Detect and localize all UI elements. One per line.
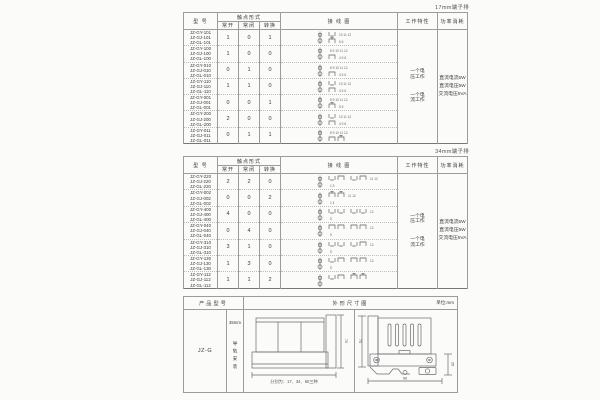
model-cell: JZ-GY-101JZ-GJ-101JZ-GL-101 bbox=[184, 30, 218, 46]
model-cell: JZ-GY-400JZ-GJ-400JZ-GL-400 bbox=[184, 206, 218, 222]
wiring-diagram: 11 121 5 bbox=[282, 174, 397, 189]
side-rail-label: 35 bbox=[451, 362, 456, 367]
model-name: JZ-GL-400 bbox=[184, 217, 217, 222]
diagram-cell: 125 bbox=[281, 223, 398, 239]
unit-label: 单位:mm bbox=[436, 300, 454, 306]
co-count: 1 bbox=[260, 30, 281, 46]
mount-type-label: 导轨安装 bbox=[232, 328, 238, 384]
model-name: JZ-GL-310 bbox=[184, 250, 217, 255]
nc-count: 1 bbox=[239, 239, 260, 255]
diagram-cell: 10 11 125 6 bbox=[281, 30, 398, 46]
model-cell: JZ-GY-011JZ-GJ-011JZ-GL-011 bbox=[184, 127, 218, 143]
model-cell: JZ-GY-010JZ-GJ-010JZ-GL-010 bbox=[184, 62, 218, 78]
diagram-cell: 8 9 10 11 124 5 6 bbox=[281, 62, 398, 78]
nc-count: 0 bbox=[239, 190, 260, 206]
no-count: 1 bbox=[218, 255, 239, 271]
model-name: JZ-GL-010 bbox=[184, 73, 217, 78]
co-count: 1 bbox=[260, 95, 281, 111]
svg-text:8 9 10 11 12: 8 9 10 11 12 bbox=[330, 66, 348, 70]
model-name: JZ-GL-112 bbox=[184, 283, 217, 288]
col-header-contact-form: 触点形式 bbox=[218, 13, 281, 22]
svg-text:10 11 12: 10 11 12 bbox=[339, 115, 351, 119]
nc-count: 0 bbox=[239, 111, 260, 127]
no-count: 0 bbox=[218, 127, 239, 143]
diagram-cell: 8 9 10 11 124 5 6 bbox=[281, 46, 398, 62]
side-height-label: 70 bbox=[358, 339, 363, 344]
svg-text:1 4: 1 4 bbox=[330, 201, 335, 205]
model-name: JZ-GL-040 bbox=[184, 233, 217, 238]
wiring-diagram: 11 121 4 bbox=[282, 191, 397, 206]
diagram-cell bbox=[281, 272, 398, 288]
svg-text:4 5 6: 4 5 6 bbox=[339, 56, 346, 60]
co-count: 0 bbox=[260, 174, 281, 190]
model-name: JZ-GL-110 bbox=[184, 89, 217, 94]
svg-text:5 6: 5 6 bbox=[339, 105, 344, 109]
model-cell: JZ-GY-001JZ-GJ-001JZ-GL-001 bbox=[184, 95, 218, 111]
co-count: 0 bbox=[260, 46, 281, 62]
front-view-cell: 70 分别为：17、34、60三种 bbox=[244, 310, 355, 393]
col-header-outline: 外形尺寸图 单位:mm bbox=[244, 297, 458, 310]
wiring-diagram: 125 bbox=[282, 207, 397, 222]
svg-text:4 5 6: 4 5 6 bbox=[339, 89, 346, 93]
co-count: 2 bbox=[260, 272, 281, 288]
svg-text:8 9 10 11 12: 8 9 10 11 12 bbox=[330, 49, 348, 53]
model-name: JZ-GL-100 bbox=[184, 56, 217, 61]
svg-text:12: 12 bbox=[370, 259, 374, 263]
svg-text:10 11 12: 10 11 12 bbox=[339, 82, 351, 86]
nc-count: 0 bbox=[239, 206, 260, 222]
front-view-drawing: 70 分别为：17、34、60三种 bbox=[244, 310, 354, 387]
col-header-nc: 常闭 bbox=[239, 22, 260, 30]
model-name: JZ-GL-101 bbox=[184, 40, 217, 45]
no-count: 3 bbox=[218, 239, 239, 255]
nc-count: 1 bbox=[239, 127, 260, 143]
col-header-co: 转换 bbox=[260, 166, 281, 174]
col-header-model: 型 号 bbox=[184, 13, 218, 30]
model-cell: JZ-GY-310JZ-GJ-310JZ-GL-310 bbox=[184, 239, 218, 255]
col-header-nc: 常闭 bbox=[239, 166, 260, 174]
co-count: 0 bbox=[260, 206, 281, 222]
spec-table-17mm-container: 型 号触点形式接 线 图工作特性功率消耗常开常闭转换JZ-GY-101JZ-GJ… bbox=[183, 12, 468, 144]
model-name: JZ-GL-130 bbox=[184, 266, 217, 271]
svg-text:5: 5 bbox=[330, 233, 332, 237]
outline-table: 产品型号 外形尺寸图 单位:mm JZ-G 35mm 导轨安装 bbox=[183, 296, 458, 393]
model-cell: JZ-GY-100JZ-GJ-100JZ-GL-100 bbox=[184, 46, 218, 62]
work-mode-cell: 一个电压工作一个电流工作 bbox=[398, 174, 438, 289]
nc-count: 1 bbox=[239, 272, 260, 288]
no-count: 0 bbox=[218, 223, 239, 239]
co-count: 0 bbox=[260, 239, 281, 255]
power-item-label: 交流电压5VA bbox=[438, 92, 467, 97]
nc-count: 1 bbox=[239, 78, 260, 94]
model-cell: JZ-GY-220JZ-GJ-220JZ-GL-220 bbox=[184, 174, 218, 190]
mount-cell: 35mm 导轨安装 bbox=[227, 310, 244, 393]
spec-row: JZ-GY-220JZ-GJ-220JZ-GL-22022011 121 5一个… bbox=[184, 174, 468, 190]
model-name: JZ-GL-011 bbox=[184, 138, 217, 143]
wiring-diagram: 10 11 124 5 6 bbox=[282, 112, 397, 127]
wiring-diagram: 8 9 10 11 125 6 bbox=[282, 95, 397, 110]
power-item-label: 直流电压5W bbox=[438, 84, 467, 89]
model-name: JZ-GL-200 bbox=[184, 122, 217, 127]
svg-text:4 5 6: 4 5 6 bbox=[339, 73, 346, 77]
nc-count: 1 bbox=[239, 62, 260, 78]
no-count: 0 bbox=[218, 95, 239, 111]
svg-text:5 6: 5 6 bbox=[339, 40, 344, 44]
power-consumption-cell: 直流电流5W直流电压5W交流电压5VA bbox=[438, 30, 468, 144]
co-count: 2 bbox=[260, 190, 281, 206]
model-cell: JZ-GY-112JZ-GJ-112JZ-GL-112 bbox=[184, 272, 218, 288]
model-cell: JZ-GY-110JZ-GJ-110JZ-GL-110 bbox=[184, 78, 218, 94]
front-view-note: 分别为：17、34、60三种 bbox=[270, 378, 317, 385]
diagram-cell: 10 11 124 5 6 bbox=[281, 111, 398, 127]
col-header-work: 工作特性 bbox=[398, 157, 438, 174]
no-count: 1 bbox=[218, 78, 239, 94]
col-header-work: 工作特性 bbox=[398, 13, 438, 30]
front-height-label: 70 bbox=[344, 339, 349, 344]
no-count: 1 bbox=[218, 30, 239, 46]
model-name: JZ-GL-001 bbox=[184, 105, 217, 110]
diagram-cell: 125 bbox=[281, 206, 398, 222]
col-header-co: 转换 bbox=[260, 22, 281, 30]
spec-table: 型 号触点形式接 线 图工作特性功率消耗常开常闭转换JZ-GY-220JZ-GJ… bbox=[183, 156, 468, 289]
nc-count: 0 bbox=[239, 95, 260, 111]
co-count: 0 bbox=[260, 62, 281, 78]
no-count: 2 bbox=[218, 111, 239, 127]
diagram-cell: 8 9 10 11 125 6 bbox=[281, 95, 398, 111]
svg-text:12: 12 bbox=[370, 226, 374, 230]
col-header-wiring: 接 线 图 bbox=[281, 13, 398, 30]
outline-header-label: 外形尺寸图 bbox=[333, 301, 369, 307]
svg-text:5: 5 bbox=[330, 217, 332, 221]
wiring-diagram: 8 9 10 11 124 5 6 bbox=[282, 46, 397, 61]
no-count: 4 bbox=[218, 206, 239, 222]
no-count: 1 bbox=[218, 46, 239, 62]
model-cell: JZ-GY-130JZ-GJ-130JZ-GL-130 bbox=[184, 255, 218, 271]
work-mode-label: 一个电流工作 bbox=[410, 237, 426, 248]
product-model-cell: JZ-G bbox=[184, 310, 227, 393]
diagram-cell: 8 9 10 11 12 bbox=[281, 127, 398, 143]
col-header-no: 常开 bbox=[218, 166, 239, 174]
power-item-label: 直流电流5W bbox=[438, 220, 467, 225]
side-width-label: 90 bbox=[403, 376, 408, 381]
work-mode-label: 一个电压工作 bbox=[410, 69, 426, 80]
diagram-cell: 11 121 5 bbox=[281, 174, 398, 190]
svg-text:12: 12 bbox=[370, 210, 374, 214]
col-header-wiring: 接 线 图 bbox=[281, 157, 398, 174]
co-count: 0 bbox=[260, 78, 281, 94]
no-count: 2 bbox=[218, 174, 239, 190]
svg-text:8 9 10 11 12: 8 9 10 11 12 bbox=[330, 131, 348, 135]
work-mode-label: 一个电流工作 bbox=[410, 93, 426, 104]
svg-text:10 11 12: 10 11 12 bbox=[339, 33, 351, 37]
svg-text:5: 5 bbox=[330, 266, 332, 270]
co-count: 0 bbox=[260, 255, 281, 271]
col-header-contact-form: 触点形式 bbox=[218, 157, 281, 166]
wiring-diagram: 10 11 125 6 bbox=[282, 30, 397, 45]
svg-text:4 5 6: 4 5 6 bbox=[339, 122, 346, 126]
col-header-no: 常开 bbox=[218, 22, 239, 30]
nc-count: 0 bbox=[239, 30, 260, 46]
model-name: JZ-GL-002 bbox=[184, 201, 217, 206]
svg-text:8 9 10 11 12: 8 9 10 11 12 bbox=[330, 98, 348, 102]
mount-width-label: 35mm bbox=[227, 320, 243, 325]
work-mode-label: 一个电压工作 bbox=[410, 214, 426, 225]
model-cell: JZ-GY-200JZ-GJ-200JZ-GL-200 bbox=[184, 111, 218, 127]
nc-count: 0 bbox=[239, 46, 260, 62]
svg-text:5: 5 bbox=[330, 250, 332, 254]
svg-text:11 12: 11 12 bbox=[370, 177, 378, 181]
power-item-label: 交流电压5VA bbox=[438, 236, 467, 241]
model-cell: JZ-GY-040JZ-GJ-040JZ-GL-040 bbox=[184, 223, 218, 239]
no-count: 0 bbox=[218, 190, 239, 206]
diagram-cell: 125 bbox=[281, 239, 398, 255]
spec-table: 型 号触点形式接 线 图工作特性功率消耗常开常闭转换JZ-GY-101JZ-GJ… bbox=[183, 12, 468, 144]
co-count: 0 bbox=[260, 223, 281, 239]
no-count: 0 bbox=[218, 62, 239, 78]
terminal-label-17mm: 17mm端子排 bbox=[435, 3, 469, 11]
wiring-diagram: 8 9 10 11 12 bbox=[282, 128, 397, 143]
catalog-page: 17mm端子排 型 号触点形式接 线 图工作特性功率消耗常开常闭转换JZ-GY-… bbox=[0, 0, 600, 400]
nc-count: 4 bbox=[239, 223, 260, 239]
wiring-diagram: 125 bbox=[282, 223, 397, 238]
diagram-cell: 10 11 124 5 6 bbox=[281, 78, 398, 94]
side-view-cell: 70 90 35 bbox=[355, 310, 458, 393]
no-count: 1 bbox=[218, 272, 239, 288]
svg-text:12: 12 bbox=[370, 243, 374, 247]
wiring-diagram: 8 9 10 11 124 5 6 bbox=[282, 63, 397, 78]
nc-count: 2 bbox=[239, 174, 260, 190]
wiring-diagram bbox=[282, 273, 397, 288]
spec-table-34mm-container: 型 号触点形式接 线 图工作特性功率消耗常开常闭转换JZ-GY-220JZ-GJ… bbox=[183, 156, 468, 289]
svg-text:11 12: 11 12 bbox=[348, 194, 356, 198]
co-count: 1 bbox=[260, 127, 281, 143]
col-header-power: 功率消耗 bbox=[438, 157, 468, 174]
svg-text:1 5: 1 5 bbox=[330, 184, 335, 188]
col-header-model: 型 号 bbox=[184, 157, 218, 174]
spec-row: JZ-GY-101JZ-GJ-101JZ-GL-10110110 11 125 … bbox=[184, 30, 468, 46]
side-view-drawing: 70 90 35 bbox=[355, 310, 457, 387]
power-item-label: 直流电压5W bbox=[438, 228, 467, 233]
col-header-product: 产品型号 bbox=[184, 297, 244, 310]
product-model: JZ-G bbox=[198, 348, 212, 354]
power-item-label: 直流电流5W bbox=[438, 76, 467, 81]
nc-count: 3 bbox=[239, 255, 260, 271]
wiring-diagram: 10 11 124 5 6 bbox=[282, 79, 397, 94]
model-cell: JZ-GY-002JZ-GJ-002JZ-GL-002 bbox=[184, 190, 218, 206]
wiring-diagram: 125 bbox=[282, 240, 397, 255]
outline-table-container: 产品型号 外形尺寸图 单位:mm JZ-G 35mm 导轨安装 bbox=[183, 296, 458, 393]
work-mode-cell: 一个电压工作一个电流工作 bbox=[398, 30, 438, 144]
col-header-power: 功率消耗 bbox=[438, 13, 468, 30]
diagram-cell: 11 121 4 bbox=[281, 190, 398, 206]
power-consumption-cell: 直流电流5W直流电压5W交流电压5VA bbox=[438, 174, 468, 289]
co-count: 0 bbox=[260, 111, 281, 127]
wiring-diagram: 125 bbox=[282, 256, 397, 271]
terminal-label-34mm: 34mm端子排 bbox=[435, 147, 469, 155]
model-name: JZ-GL-220 bbox=[184, 184, 217, 189]
diagram-cell: 125 bbox=[281, 255, 398, 271]
